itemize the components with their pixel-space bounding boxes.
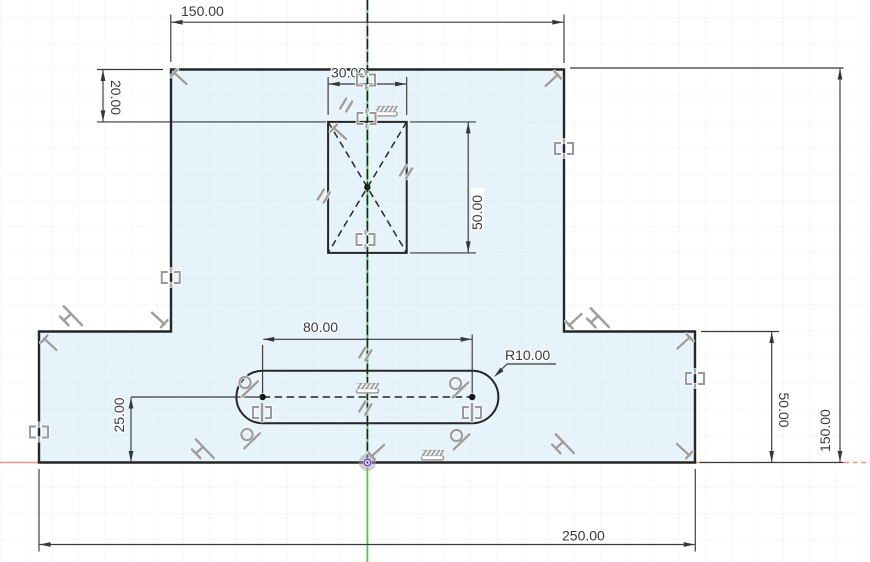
svg-text:50.00: 50.00 xyxy=(469,195,485,230)
svg-text:150.00: 150.00 xyxy=(181,3,224,19)
svg-text:30.00: 30.00 xyxy=(331,65,366,81)
svg-text:25.00: 25.00 xyxy=(111,397,127,432)
svg-text:R10.00: R10.00 xyxy=(505,347,550,363)
svg-text:80.00: 80.00 xyxy=(303,319,338,335)
svg-text:150.00: 150.00 xyxy=(817,409,833,452)
svg-text:20.00: 20.00 xyxy=(108,80,124,115)
svg-text:250.00: 250.00 xyxy=(562,528,605,544)
svg-text:50.00: 50.00 xyxy=(776,393,792,428)
